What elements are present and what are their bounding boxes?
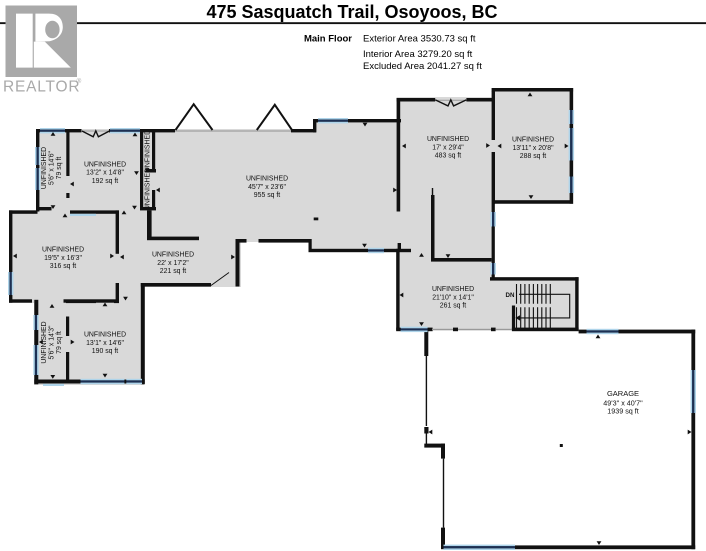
svg-text:1939 sq ft: 1939 sq ft bbox=[607, 407, 639, 416]
svg-text:483 sq ft: 483 sq ft bbox=[435, 153, 462, 160]
svg-text:DN: DN bbox=[506, 292, 515, 299]
svg-text:955 sq ft: 955 sq ft bbox=[254, 192, 281, 199]
svg-text:190 sq ft: 190 sq ft bbox=[92, 348, 119, 355]
svg-text:Interior Area 3279.20 sq ft: Interior Area 3279.20 sq ft bbox=[363, 49, 473, 60]
svg-text:316 sq ft: 316 sq ft bbox=[50, 263, 77, 270]
svg-text:22' x 17'2": 22' x 17'2" bbox=[157, 260, 189, 267]
svg-text:79 sq ft: 79 sq ft bbox=[56, 157, 63, 180]
svg-text:UNFINISHED: UNFINISHED bbox=[41, 147, 48, 189]
svg-text:UNFINISHED: UNFINISHED bbox=[145, 168, 152, 210]
svg-text:UNFINISHED: UNFINISHED bbox=[512, 137, 554, 144]
svg-text:17' x 29'4": 17' x 29'4" bbox=[432, 144, 464, 151]
svg-text:UNFINISHED: UNFINISHED bbox=[42, 247, 84, 254]
svg-text:13'2" x 14'8": 13'2" x 14'8" bbox=[86, 170, 124, 177]
svg-text:45'7" x 23'6": 45'7" x 23'6" bbox=[248, 184, 286, 191]
svg-text:UNFINISHED: UNFINISHED bbox=[427, 136, 469, 143]
svg-text:221 sq ft: 221 sq ft bbox=[160, 268, 187, 275]
svg-text:13'1" x 14'6": 13'1" x 14'6" bbox=[86, 340, 124, 347]
svg-text:5'6" x 14'6": 5'6" x 14'6" bbox=[48, 150, 55, 185]
svg-text:Main Floor: Main Floor bbox=[304, 34, 352, 45]
svg-text:UNFINISHED: UNFINISHED bbox=[41, 321, 48, 363]
svg-text:79 sq ft: 79 sq ft bbox=[56, 331, 63, 354]
svg-text:261 sq ft: 261 sq ft bbox=[440, 303, 467, 310]
svg-text:UNFINISHED: UNFINISHED bbox=[246, 176, 288, 183]
svg-text:13'11" x 20'8": 13'11" x 20'8" bbox=[512, 145, 554, 152]
svg-text:UNFINISHED: UNFINISHED bbox=[152, 252, 194, 259]
svg-text:21'10" x 14'1": 21'10" x 14'1" bbox=[432, 294, 474, 301]
svg-text:288 sq ft: 288 sq ft bbox=[520, 153, 547, 160]
svg-text:19'5" x 16'3": 19'5" x 16'3" bbox=[44, 255, 82, 262]
svg-text:UNFINISHED: UNFINISHED bbox=[84, 332, 126, 339]
svg-text:UNFINISHED: UNFINISHED bbox=[84, 161, 126, 168]
svg-text:5'6" x 14'3": 5'6" x 14'3" bbox=[48, 325, 55, 360]
svg-text:®: ® bbox=[77, 77, 82, 85]
svg-text:Exterior Area 3530.73 sq ft: Exterior Area 3530.73 sq ft bbox=[363, 34, 476, 45]
svg-text:UNFINISHED: UNFINISHED bbox=[432, 286, 474, 293]
svg-text:192 sq ft: 192 sq ft bbox=[92, 178, 119, 185]
svg-text:UNFINISHED: UNFINISHED bbox=[145, 130, 152, 172]
svg-text:Excluded Area 2041.27 sq ft: Excluded Area 2041.27 sq ft bbox=[363, 61, 482, 72]
svg-text:REALTOR: REALTOR bbox=[3, 79, 80, 96]
svg-text:475 Sasquatch Trail, Osoyoos,: 475 Sasquatch Trail, Osoyoos, BC bbox=[206, 2, 497, 22]
svg-text:GARAGE: GARAGE bbox=[607, 389, 639, 398]
